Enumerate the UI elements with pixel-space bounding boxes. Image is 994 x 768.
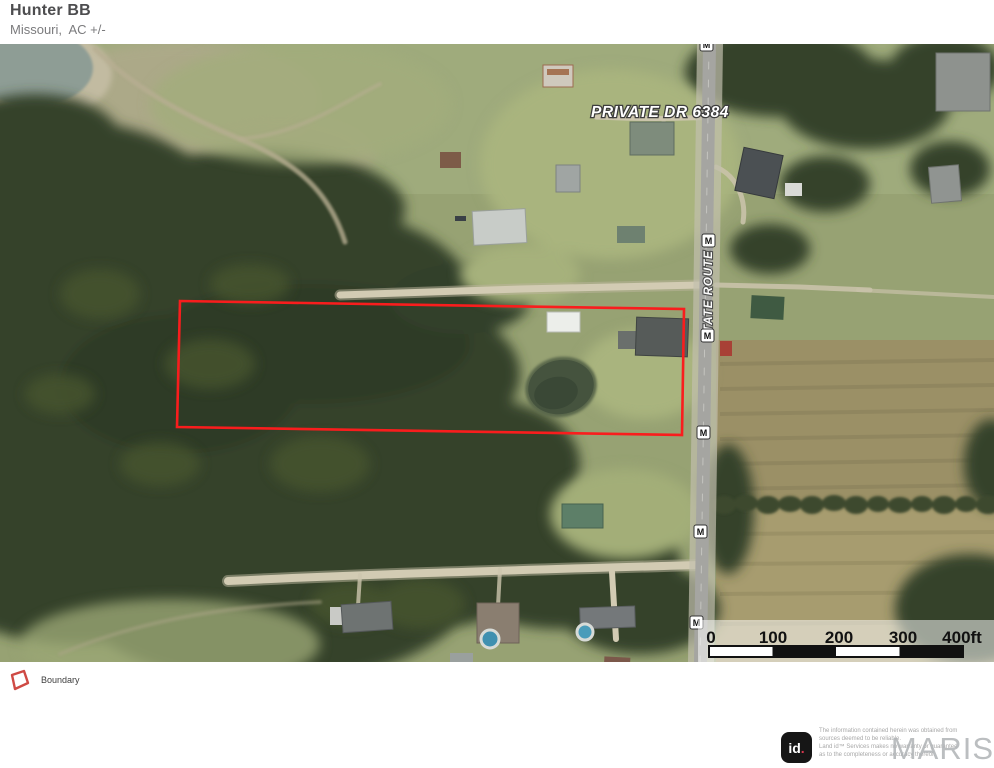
- legend: Boundary: [8, 668, 80, 692]
- scale-tick: 200: [825, 628, 853, 647]
- scale-tick: 100: [759, 628, 787, 647]
- scale-tick: 400ft: [942, 628, 982, 647]
- land-id-logo: id.: [781, 732, 812, 763]
- svg-text:M: M: [705, 236, 713, 246]
- svg-text:M: M: [703, 44, 711, 50]
- logo-dot: .: [801, 741, 805, 755]
- listing-title: Hunter BB: [10, 2, 106, 20]
- scale-tick: 300: [889, 628, 917, 647]
- scale-tick: 0: [706, 628, 715, 647]
- listing-page: Hunter BB Missouri, AC +/-: [0, 0, 994, 768]
- route-badge: M: [697, 426, 710, 439]
- state-route-label: STATE ROUTE M: [703, 235, 715, 340]
- svg-text:M: M: [697, 527, 705, 537]
- satellite-map: PRIVATE DR 6384 STATE ROUTE M M M M M M …: [0, 44, 994, 662]
- scale-bar: 0 100 200 300 400ft: [698, 620, 994, 662]
- maris-watermark: MARIS: [891, 731, 994, 767]
- listing-header: Hunter BB Missouri, AC +/-: [10, 2, 106, 37]
- boundary-legend-label: Boundary: [41, 675, 80, 685]
- svg-text:M: M: [704, 331, 712, 341]
- route-badge: M: [700, 44, 713, 51]
- private-drive-label: PRIVATE DR 6384: [591, 104, 729, 121]
- route-badge: M: [701, 329, 714, 342]
- map-canvas: PRIVATE DR 6384 STATE ROUTE M M M M M M …: [0, 44, 994, 662]
- svg-text:M: M: [700, 428, 708, 438]
- route-badge: M: [702, 234, 715, 247]
- boundary-legend-icon: [8, 668, 31, 692]
- logo-text: id: [788, 741, 800, 755]
- route-badge: M: [694, 525, 707, 538]
- listing-subtitle: Missouri, AC +/-: [10, 22, 106, 37]
- scale-segments: [709, 646, 963, 657]
